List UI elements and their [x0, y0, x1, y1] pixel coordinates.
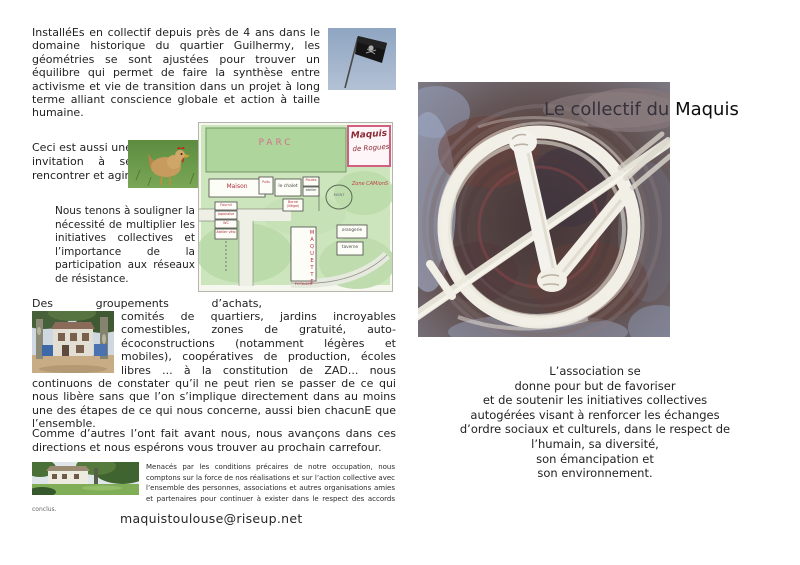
- map-label-parc: PARC: [241, 139, 311, 148]
- map-label-zone-camions: Zone CAMionS: [349, 182, 391, 187]
- invitation-text: Ceci est aussi une invitation à se renco…: [32, 141, 132, 182]
- hen-photo: [128, 140, 201, 188]
- intro-paragraph: InstalléEs en collectif depuis près de 4…: [32, 26, 396, 120]
- association-line: son émancipation et: [420, 452, 770, 467]
- map-label-maison: Maison: [209, 184, 265, 190]
- menaces-suffix: conclus.: [32, 506, 57, 513]
- map-label-orangerie: orangerie: [337, 228, 367, 232]
- map-label-taverne: taverne: [337, 245, 363, 249]
- map-label-atelier: atelier: [303, 189, 319, 193]
- association-line: donne pour but de favoriser: [420, 379, 770, 394]
- intro-text: InstalléEs en collectif depuis près de 4…: [32, 26, 320, 119]
- souligner-text: Nous tenons à souligner la nécessité de …: [55, 205, 195, 285]
- pirate-flag-photo: [328, 28, 396, 90]
- association-line: d’ordre sociaux et culturels, dans le re…: [420, 422, 770, 437]
- souligner-paragraph: Nous tenons à souligner la nécessité de …: [55, 205, 195, 287]
- title-prefix: Le collectif du: [544, 99, 675, 120]
- map-label-chalet: le chalet: [275, 185, 301, 190]
- carrefour-paragraph: Comme d’autres l’ont fait avant nous, no…: [32, 427, 396, 455]
- house-photo: [32, 311, 114, 373]
- house-panorama-photo: [32, 462, 139, 495]
- title-emphasis: Maquis: [675, 99, 739, 120]
- association-line: son environnement.: [420, 466, 770, 481]
- map-label-japonaise: Japonaise: [215, 213, 237, 217]
- menaces-text: Menacés par les conditions précaires de …: [146, 463, 395, 503]
- site-map-image: PARC Maquis de Rogues Maison Puits le ch…: [198, 122, 393, 292]
- association-line: l’humain, sa diversité,: [420, 437, 770, 452]
- map-label-borne: Borne (illégal): [283, 201, 303, 208]
- menaces-paragraph: Menacés par les conditions précaires de …: [32, 462, 395, 516]
- association-line: L’association se: [420, 364, 770, 379]
- map-label-maquette: MAQUETTE: [293, 230, 314, 280]
- invitation-paragraph: Ceci est aussi une invitation à se renco…: [32, 141, 132, 183]
- map-label-wc: WC: [215, 222, 237, 226]
- map-label-fournil: Fournil: [215, 204, 237, 208]
- association-line: autogérées visant à renforcer les échang…: [420, 408, 770, 423]
- anarchy-painting-image: [418, 82, 670, 337]
- email-address: maquistoulouse@riseup.net: [120, 511, 303, 526]
- page-title: Le collectif du Maquis: [544, 99, 739, 120]
- map-label-puits: Puits: [259, 181, 273, 184]
- map-label-velo: Atelier vélo: [215, 231, 237, 235]
- map-label-poules: Poules: [303, 179, 319, 183]
- groupements-first-line: Des groupements d’achats,: [32, 297, 262, 310]
- association-paragraph: L’association se donne pour but de favor…: [420, 364, 770, 481]
- association-line: et de soutenir les initiatives collectiv…: [420, 393, 770, 408]
- map-label-mont: MONT: [326, 194, 352, 198]
- carrefour-text: Comme d’autres l’ont fait avant nous, no…: [32, 427, 396, 454]
- groupements-paragraph: comités de quartiers, jardins incroyable…: [32, 310, 396, 431]
- map-label-potager: POTAGER: [290, 282, 317, 286]
